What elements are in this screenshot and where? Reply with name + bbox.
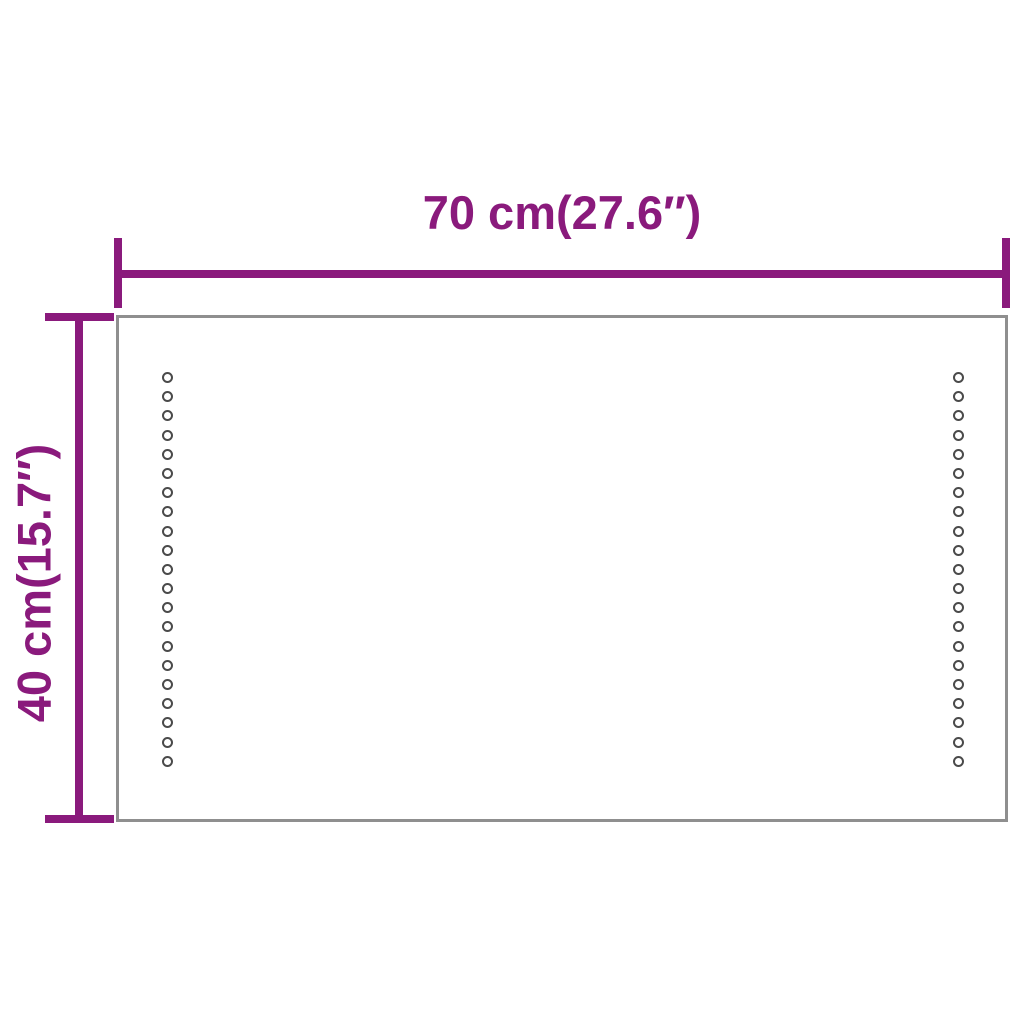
led-dot <box>162 564 173 575</box>
led-column-left <box>162 372 173 767</box>
led-dot <box>162 430 173 441</box>
led-dot <box>953 545 964 556</box>
led-dot <box>953 602 964 613</box>
width-dimension-label: 70 cm(27.6″) <box>117 189 1007 236</box>
width-dimension-cap-right <box>1002 238 1010 308</box>
led-dot <box>953 487 964 498</box>
led-dot <box>162 602 173 613</box>
led-dot <box>953 410 964 421</box>
mirror-outline <box>116 315 1008 822</box>
led-dot <box>162 468 173 479</box>
led-dot <box>162 506 173 517</box>
led-dot <box>162 756 173 767</box>
led-dot <box>162 372 173 383</box>
led-dot <box>953 660 964 671</box>
led-dot <box>953 526 964 537</box>
led-dot <box>162 391 173 402</box>
height-dimension-cap-top <box>45 313 114 321</box>
led-dot <box>162 526 173 537</box>
width-dimension-line <box>117 270 1007 278</box>
led-dot <box>953 391 964 402</box>
led-dot <box>162 410 173 421</box>
led-dot <box>162 698 173 709</box>
led-dot <box>953 468 964 479</box>
led-dot <box>953 583 964 594</box>
dimension-diagram: 70 cm(27.6″) 40 cm(15.7″) <box>0 0 1024 1024</box>
led-dot <box>162 449 173 460</box>
led-dot <box>162 660 173 671</box>
height-dimension-line <box>75 316 83 820</box>
width-dimension-cap-left <box>114 238 122 308</box>
led-dot <box>162 583 173 594</box>
height-dimension-label: 40 cm(15.7″) <box>11 444 58 723</box>
led-dot <box>953 679 964 690</box>
led-dot <box>953 621 964 632</box>
led-dot <box>162 679 173 690</box>
led-dot <box>162 545 173 556</box>
led-dot <box>953 506 964 517</box>
led-dot <box>162 487 173 498</box>
led-dot <box>162 737 173 748</box>
led-dot <box>953 564 964 575</box>
led-dot <box>953 698 964 709</box>
led-column-right <box>953 372 964 767</box>
led-dot <box>953 737 964 748</box>
led-dot <box>162 717 173 728</box>
led-dot <box>953 372 964 383</box>
led-dot <box>953 641 964 652</box>
led-dot <box>953 717 964 728</box>
led-dot <box>162 621 173 632</box>
height-dimension-cap-bottom <box>45 815 114 823</box>
led-dot <box>953 449 964 460</box>
led-dot <box>953 430 964 441</box>
led-dot <box>953 756 964 767</box>
led-dot <box>162 641 173 652</box>
